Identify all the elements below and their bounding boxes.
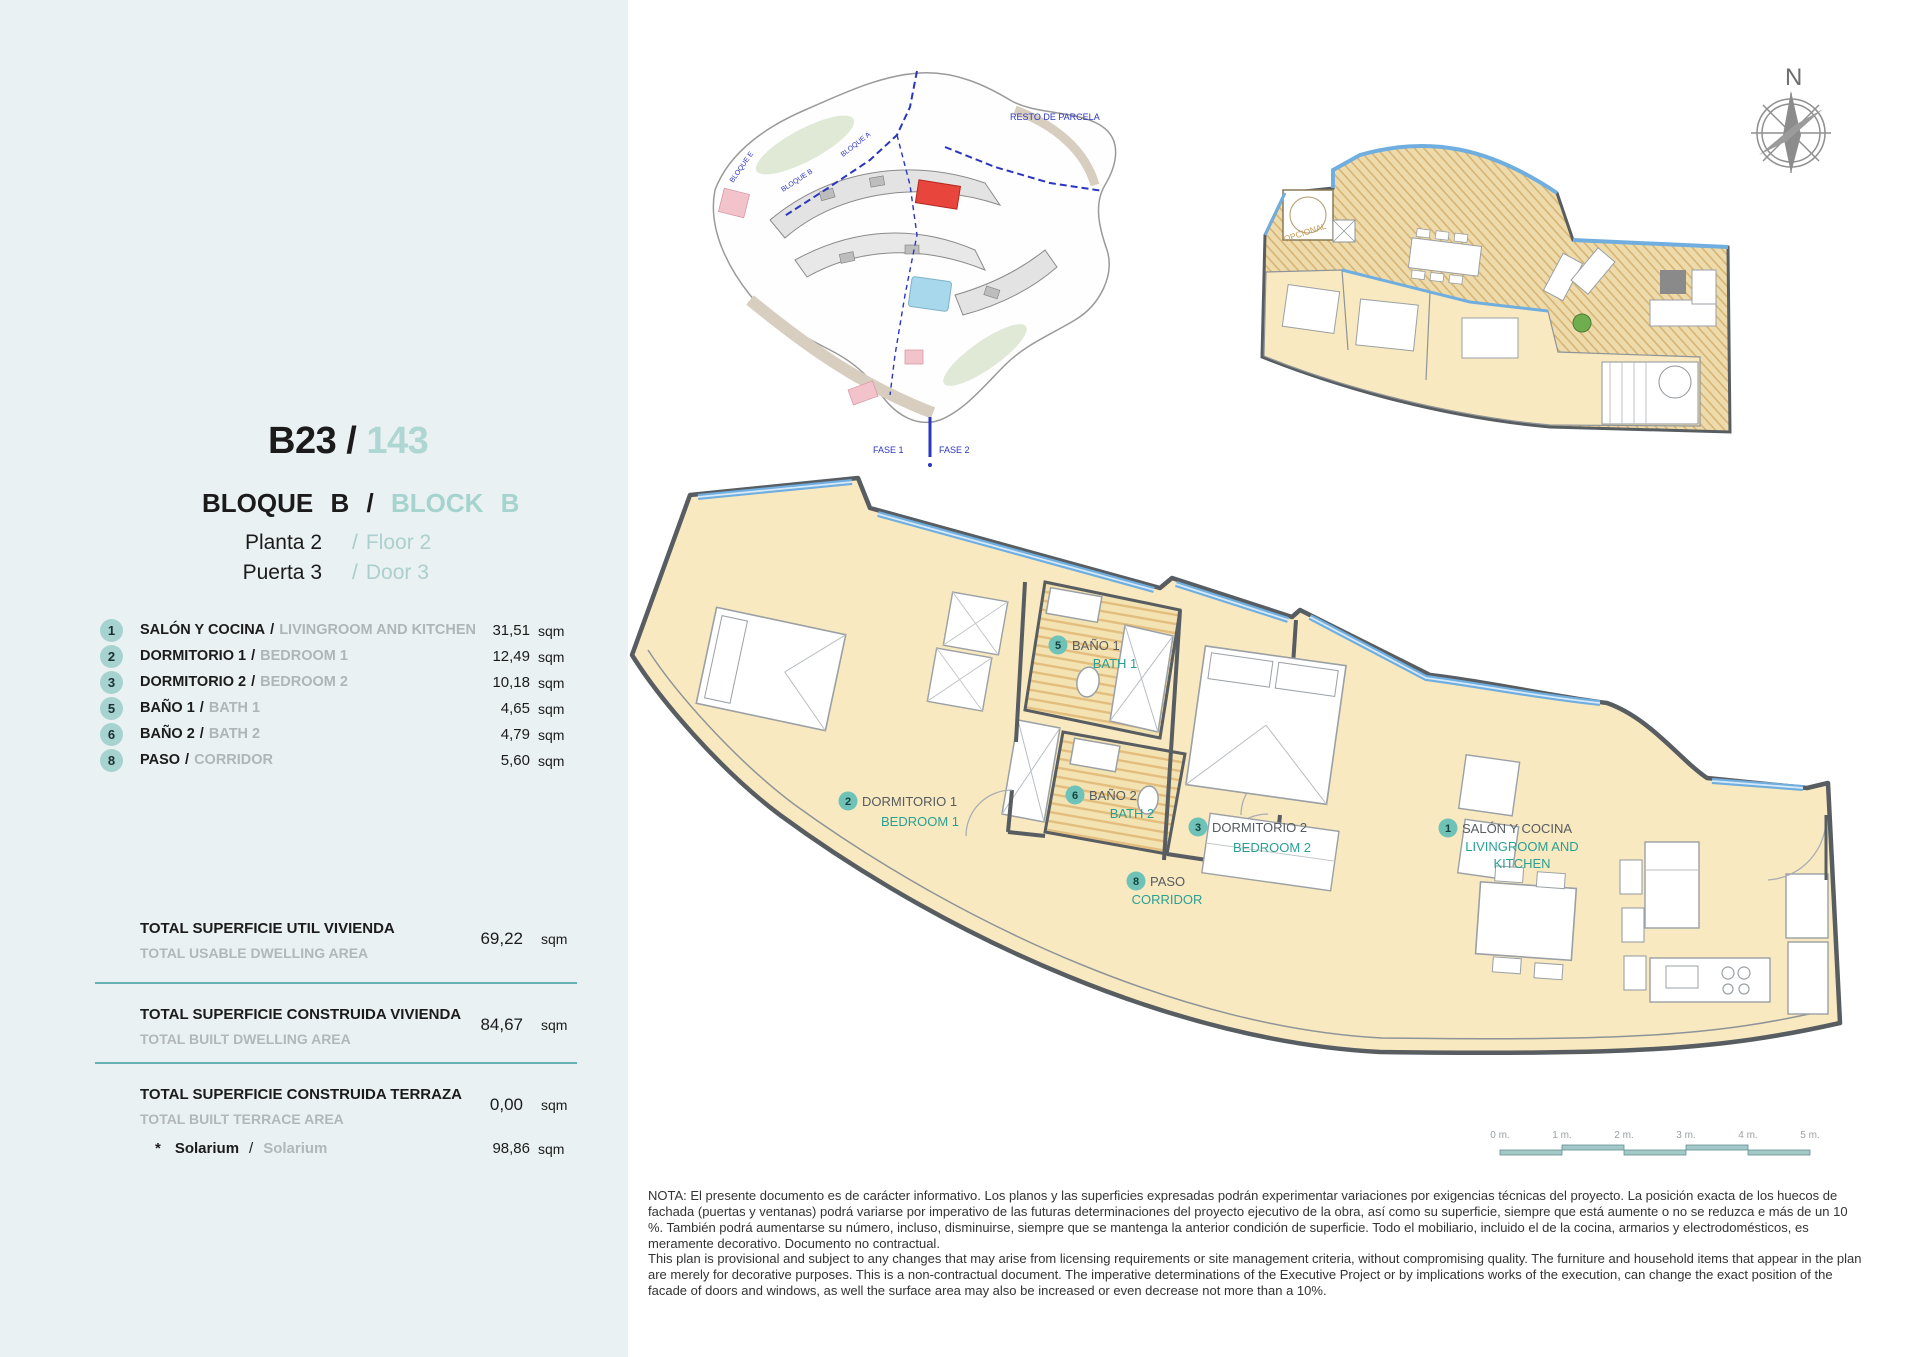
svg-text:5: 5	[1055, 640, 1061, 652]
unit-title-slash: /	[346, 420, 356, 462]
room-number-badge: 8	[100, 749, 123, 772]
solarium-value: 98,86	[430, 1140, 530, 1157]
north-label: N	[1785, 64, 1802, 91]
block-slash: /	[366, 488, 373, 518]
total-terrace-en: TOTAL BUILT TERRACE AREA	[140, 1111, 344, 1127]
roof-detail	[905, 245, 919, 254]
svg-text:DORMITORIO 1: DORMITORIO 1	[862, 794, 957, 809]
svg-text:5 m.: 5 m.	[1800, 1130, 1819, 1141]
svg-text:3: 3	[1195, 822, 1201, 834]
fase-divider-dot	[928, 463, 932, 467]
svg-text:8: 8	[1133, 876, 1139, 888]
skylight	[1333, 220, 1355, 242]
room-area: 10,18	[430, 674, 530, 691]
solarium-en: Solarium	[263, 1140, 327, 1157]
solarium-plan: OPCIONAL	[1230, 120, 1805, 480]
room-row-bath2: 6 BAÑO 2/BATH 2 4,79 sqm	[0, 726, 628, 750]
spec-sidebar: B23 / 143 BLOQUE B / BLOCK B Planta 2 /F…	[0, 0, 628, 1357]
room-row-salon: 1 SALÓN Y COCINA/LIVINGROOM AND KITCHEN …	[0, 622, 628, 646]
legal-note-es: NOTA: El presente documento es de caráct…	[648, 1188, 1862, 1251]
svg-text:BATH 1: BATH 1	[1093, 656, 1138, 671]
total-terrace-es: TOTAL SUPERFICIE CONSTRUIDA TERRAZA	[140, 1086, 462, 1103]
solarium-es: Solarium	[175, 1140, 239, 1157]
fase1-label: FASE 1	[873, 445, 904, 455]
legal-note: NOTA: El presente documento es de caráct…	[648, 1188, 1862, 1299]
bed	[1282, 285, 1339, 334]
compass-icon: N	[1735, 55, 1850, 180]
room-en: BEDROOM 1	[260, 648, 348, 664]
door-es: Puerta 3	[120, 561, 322, 585]
total-terrace-value: 0,00	[423, 1095, 523, 1115]
pool	[908, 276, 952, 311]
plant	[1573, 314, 1591, 332]
svg-text:KITCHEN: KITCHEN	[1493, 856, 1550, 871]
total-built-value: 84,67	[423, 1015, 523, 1035]
svg-text:BEDROOM 1: BEDROOM 1	[881, 814, 959, 829]
room-row-corridor: 8 PASO/CORRIDOR 5,60 sqm	[0, 752, 628, 776]
room-es: BAÑO 1	[140, 700, 195, 716]
legal-note-en: This plan is provisional and subject to …	[648, 1251, 1862, 1299]
outdoor-sofa	[1692, 270, 1716, 304]
svg-text:BAÑO 2: BAÑO 2	[1089, 788, 1137, 803]
door-en: /Door 3	[352, 561, 429, 585]
divider	[95, 982, 577, 984]
block-en: BLOCK B	[391, 488, 519, 518]
total-built-es: TOTAL SUPERFICIE CONSTRUIDA VIVIENDA	[140, 1006, 461, 1023]
svg-text:2 m.: 2 m.	[1614, 1130, 1633, 1141]
room-en: BATH 1	[209, 700, 260, 716]
room-number-badge: 1	[100, 619, 123, 642]
room-number-badge: 3	[100, 671, 123, 694]
room-es: SALÓN Y COCINA	[140, 622, 265, 638]
svg-text:6: 6	[1072, 790, 1078, 802]
sofa	[1462, 318, 1518, 358]
room-row-bath1: 5 BAÑO 1/BATH 1 4,65 sqm	[0, 700, 628, 724]
bed	[1186, 646, 1346, 804]
svg-text:CORRIDOR: CORRIDOR	[1132, 892, 1203, 907]
room-es: BAÑO 2	[140, 726, 195, 742]
pink-area	[848, 381, 878, 405]
bed	[1356, 299, 1418, 351]
round-fixture	[1659, 366, 1691, 398]
room-area: 12,49	[430, 648, 530, 665]
svg-text:LIVINGROOM AND: LIVINGROOM AND	[1465, 839, 1578, 854]
svg-text:BATH 2: BATH 2	[1110, 806, 1155, 821]
tv-unit	[1660, 270, 1686, 294]
svg-text:PASO: PASO	[1150, 874, 1185, 889]
room-number-badge: 5	[100, 697, 123, 720]
svg-text:DORMITORIO 2: DORMITORIO 2	[1212, 820, 1307, 835]
floor-es: Planta 2	[120, 531, 322, 555]
svg-text:0 m.: 0 m.	[1490, 1130, 1509, 1141]
divider	[95, 1062, 577, 1064]
total-usable-es: TOTAL SUPERFICIE UTIL VIVIENDA	[140, 920, 395, 937]
total-usable-en: TOTAL USABLE DWELLING AREA	[140, 945, 368, 961]
room-area: 5,60	[430, 752, 530, 769]
room-en: BATH 2	[209, 726, 260, 742]
scale-bar: 0 m. 1 m. 2 m. 3 m. 4 m. 5 m.	[1490, 1120, 1840, 1170]
svg-text:SALÓN Y COCINA: SALÓN Y COCINA	[1462, 821, 1572, 836]
site-plan: RESTO DE PARCELA BLOQUE A BLOQUE B BLOQU…	[655, 55, 1135, 480]
room-es: PASO	[140, 752, 180, 768]
resto-de-parcela-label: RESTO DE PARCELA	[1010, 112, 1100, 122]
room-row-bedroom1: 2 DORMITORIO 1/BEDROOM 1 12,49 sqm	[0, 648, 628, 672]
room-area: 31,51	[430, 622, 530, 639]
svg-text:1: 1	[1445, 823, 1451, 835]
block-es: BLOQUE B	[202, 488, 349, 518]
svg-text:4 m.: 4 m.	[1738, 1130, 1757, 1141]
block-line: BLOQUE B / BLOCK B	[202, 488, 519, 519]
svg-text:2: 2	[845, 796, 851, 808]
room-es: DORMITORIO 1	[140, 648, 246, 664]
unit-title: B23 / 143	[268, 420, 428, 463]
floor-plan: 5 BAÑO 1 BATH 1 2 DORMITORIO 1 BEDROOM 1…	[620, 470, 1845, 1085]
svg-text:1 m.: 1 m.	[1552, 1130, 1571, 1141]
room-area: 4,65	[430, 700, 530, 717]
svg-text:BAÑO 1: BAÑO 1	[1072, 638, 1120, 653]
unit-number: 143	[366, 420, 428, 462]
floor-en: /Floor 2	[352, 531, 431, 555]
total-built-en: TOTAL BUILT DWELLING AREA	[140, 1031, 351, 1047]
room-en: BEDROOM 2	[260, 674, 348, 690]
total-usable-value: 69,22	[423, 929, 523, 949]
room-number-badge: 6	[100, 723, 123, 746]
kitchen-sink	[1666, 966, 1698, 988]
room-row-bedroom2: 3 DORMITORIO 2/BEDROOM 2 10,18 sqm	[0, 674, 628, 698]
fase2-label: FASE 2	[939, 445, 970, 455]
pink-area	[905, 350, 923, 364]
solarium-row: *Solarium/Solarium	[155, 1140, 327, 1157]
room-number-badge: 2	[100, 645, 123, 668]
svg-text:BEDROOM 2: BEDROOM 2	[1233, 840, 1311, 855]
svg-text:3 m.: 3 m.	[1676, 1130, 1695, 1141]
unit-code: B23	[268, 420, 336, 462]
room-area: 4,79	[430, 726, 530, 743]
room-es: DORMITORIO 2	[140, 674, 246, 690]
room-en: CORRIDOR	[194, 752, 273, 768]
